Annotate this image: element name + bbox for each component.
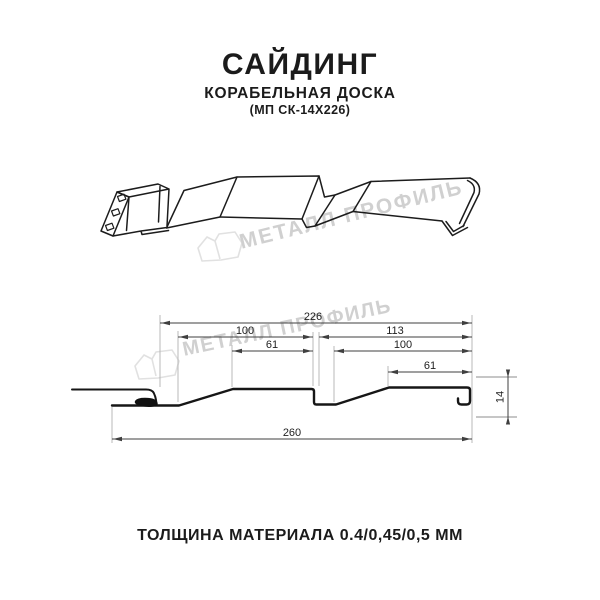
lock-channel: [113, 184, 169, 236]
board1-slope-face: [167, 177, 238, 228]
lock-hem-fold: [135, 399, 157, 407]
dim-label-14: 14: [495, 391, 507, 403]
nail-strip: [101, 192, 129, 236]
dim-label-61-right: 61: [424, 360, 436, 372]
product-drawing-page: САЙДИНГ КОРАБЕЛЬНАЯ ДОСКА (МП СК-14Х226)…: [0, 0, 600, 600]
right-end-edge: [460, 178, 480, 227]
dim-label-100-right: 100: [394, 339, 412, 351]
dimension-labels: 226 100 113 61 100 61 260 14: [236, 311, 507, 439]
dim-label-61-left: 61: [266, 339, 278, 351]
board2-flat-face: [353, 178, 470, 221]
dim-label-260: 260: [283, 427, 301, 439]
board2-slope-face: [315, 182, 371, 227]
siding-3d-drawing: [80, 165, 500, 270]
dimension-arrows: [113, 321, 510, 441]
panel-section-outline: [112, 388, 470, 406]
dim-label-100-left: 100: [236, 325, 254, 337]
dim-label-113: 113: [386, 325, 404, 337]
dim-label-226: 226: [304, 311, 322, 323]
dimension-lines: [112, 323, 508, 439]
siding-section-drawing: 226 100 113 61 100 61 260 14: [60, 295, 540, 455]
j-hook-edge: [442, 221, 468, 236]
extension-lines: [112, 315, 472, 443]
